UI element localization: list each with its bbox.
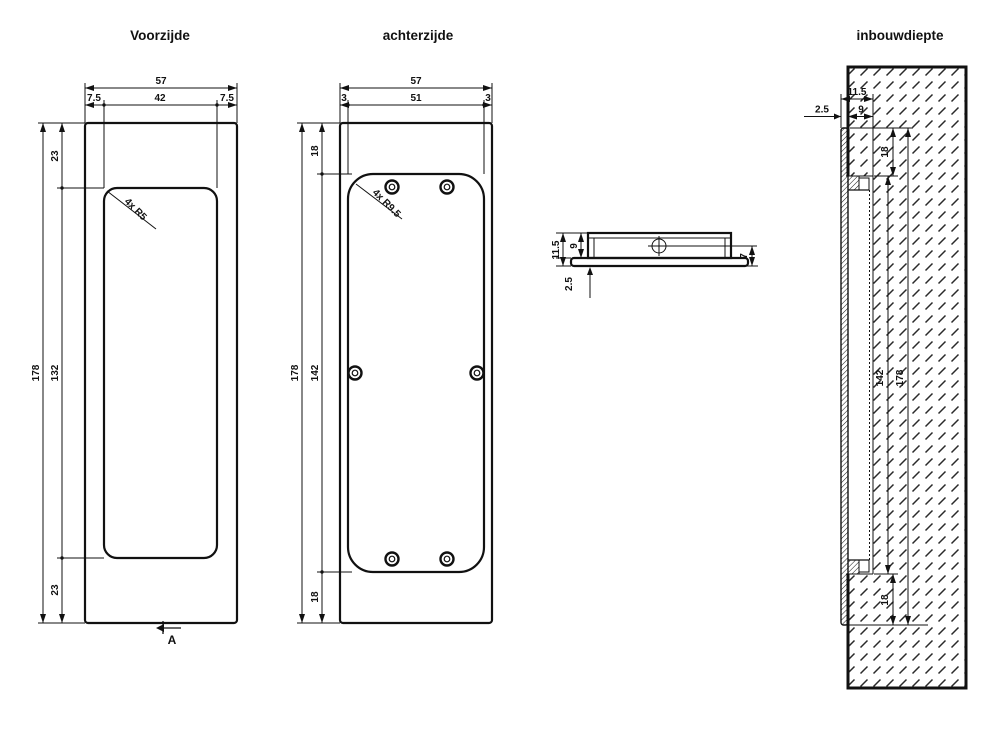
depth-view: inbouwdiepte 11.5 xyxy=(804,28,966,688)
box-top-wall-section xyxy=(848,176,859,190)
section-marker-a: A xyxy=(156,621,181,647)
side-view: 11.5 9 2.5 7 xyxy=(551,233,758,298)
section-label: A xyxy=(168,633,177,647)
back-plate-outline xyxy=(340,123,492,623)
dim-front-top-margin: 23 xyxy=(50,150,61,162)
dim-depth-flange-protrusion: 2.5 xyxy=(815,105,829,116)
dim-depth-total-height: 178 xyxy=(895,369,906,386)
screw-hole xyxy=(386,181,399,194)
box-bottom-wall-section xyxy=(848,560,859,574)
dim-depth-recess: 9 xyxy=(858,105,864,116)
dim-back-inner-width: 51 xyxy=(410,93,422,104)
dim-front-right-margin: 7.5 xyxy=(220,93,234,104)
dim-side-total-thickness: 11.5 xyxy=(551,240,562,259)
screw-hole xyxy=(441,553,454,566)
dim-back-inner-height: 142 xyxy=(310,364,321,381)
front-recess-outline xyxy=(104,188,217,558)
dim-front-total-width: 57 xyxy=(155,76,167,87)
dim-depth-bottom-margin: 18 xyxy=(880,594,891,606)
screw-hole xyxy=(386,553,399,566)
dim-front-bottom-margin: 23 xyxy=(50,584,61,596)
depth-view-title: inbouwdiepte xyxy=(857,28,944,43)
dim-back-total-height: 178 xyxy=(290,364,301,381)
dim-front-left-margin: 7.5 xyxy=(87,93,101,104)
side-flange-outline xyxy=(571,258,748,266)
box-bottom-screw-boss xyxy=(859,560,869,572)
front-corner-radius-note: 4x R5 xyxy=(122,196,149,223)
back-dimensions: 57 3 51 3 178 18 142 18 xyxy=(290,76,492,623)
dim-side-body-thickness: 9 xyxy=(569,243,580,249)
front-dimensions: 57 7.5 42 7.5 178 23 132 23 xyxy=(31,76,237,623)
dim-side-flange-thickness: 2.5 xyxy=(564,277,575,291)
dim-depth-top-margin: 18 xyxy=(880,146,891,158)
dim-back-right-margin: 3 xyxy=(485,93,491,104)
dim-front-inner-width: 42 xyxy=(154,93,166,104)
back-view-title: achterzijde xyxy=(383,28,454,43)
front-view: Voorzijde 57 7.5 42 7.5 178 23 xyxy=(31,28,237,647)
screw-hole xyxy=(349,367,362,380)
front-extension-lines xyxy=(38,83,237,623)
dim-depth-total: 11.5 xyxy=(848,87,867,98)
dim-side-inset-depth: 7 xyxy=(739,253,750,259)
dim-back-left-margin: 3 xyxy=(341,93,347,104)
technical-drawing-canvas: Voorzijde 57 7.5 42 7.5 178 23 xyxy=(0,0,1000,750)
back-box-outline xyxy=(348,174,484,572)
dim-back-total-width: 57 xyxy=(410,76,422,87)
back-screw-holes xyxy=(349,181,484,566)
screw-hole xyxy=(441,181,454,194)
back-corner-radius-note: 4x R9.5 xyxy=(370,187,403,220)
dim-back-top-margin: 18 xyxy=(310,145,321,157)
screw-hole xyxy=(471,367,484,380)
dim-depth-inner-height: 142 xyxy=(875,369,886,386)
front-plate-outline xyxy=(85,123,237,623)
dim-front-inner-height: 132 xyxy=(50,364,61,381)
dim-back-bottom-margin: 18 xyxy=(310,591,321,603)
flange-section xyxy=(841,128,848,625)
box-top-screw-boss xyxy=(859,178,869,190)
back-extension-lines xyxy=(297,83,492,623)
back-view: achterzijde 57 3 51 3 178 18 xyxy=(290,28,492,623)
drawing-svg: Voorzijde 57 7.5 42 7.5 178 23 xyxy=(0,0,1000,750)
dim-front-total-height: 178 xyxy=(31,364,42,381)
front-view-title: Voorzijde xyxy=(130,28,190,43)
